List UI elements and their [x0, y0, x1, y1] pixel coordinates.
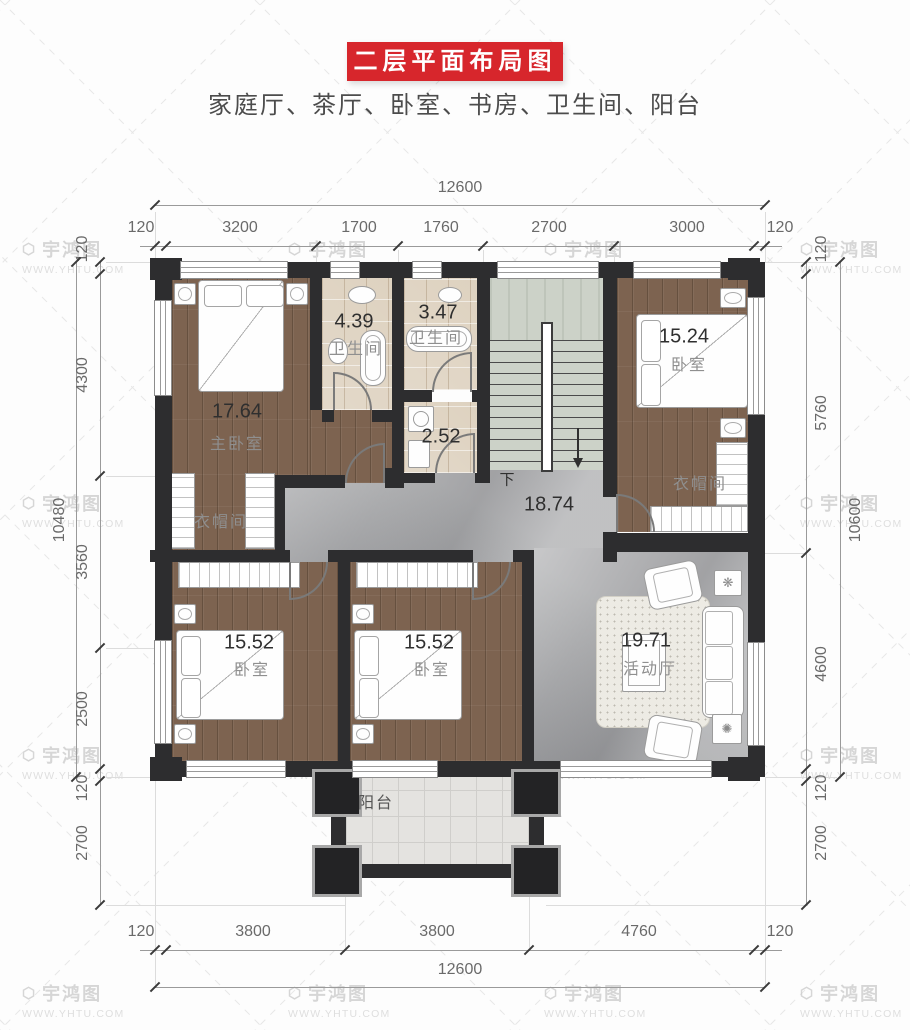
dim-line [100, 262, 101, 905]
balcony-pillar [514, 848, 558, 894]
dim-line [155, 987, 765, 988]
window [747, 642, 765, 746]
interior-wall [310, 262, 322, 410]
interior-wall [522, 550, 534, 761]
door-leaf [383, 443, 385, 483]
dim-left-seg: 3560 [74, 544, 92, 580]
dim-top-total: 12600 [438, 179, 483, 197]
nightstand [352, 724, 374, 744]
dim-top-seg: 3200 [222, 219, 258, 237]
bedroom-right-area: 15.24 [659, 326, 709, 349]
dim-bottom-seg: 3800 [419, 923, 455, 941]
interior-wall [322, 410, 334, 422]
window [154, 300, 172, 396]
nightstand [174, 604, 196, 624]
diagonal-guide-line [765, 0, 910, 1030]
bedroom-mid-name: 卧室 [414, 656, 450, 680]
bedroom-left-area: 15.52 [224, 632, 274, 655]
bathroom-1-name: 卫生间 [329, 335, 383, 359]
bedroom-right-closet-name: 衣帽间 [673, 470, 727, 494]
dim-top-seg: 3000 [669, 219, 705, 237]
dim-top-seg: 120 [767, 219, 794, 237]
side-table [720, 288, 746, 308]
dim-line [840, 262, 841, 777]
door-leaf [473, 433, 475, 473]
dim-right-seg: 120 [813, 236, 831, 263]
interior-wall [385, 468, 404, 488]
extension-line [106, 777, 155, 778]
interior-wall [338, 550, 350, 761]
extension-line [155, 777, 156, 985]
window [412, 261, 442, 279]
nightstand [352, 604, 374, 624]
interior-wall [404, 390, 432, 402]
master-name: 主卧室 [210, 430, 264, 454]
extension-line [398, 250, 399, 262]
window [497, 261, 599, 279]
extension-line [316, 250, 317, 262]
family-room-name: 活动厅 [623, 655, 677, 679]
balcony-name: 阳台 [358, 789, 394, 813]
balcony-wall [331, 864, 544, 878]
interior-wall [372, 410, 392, 422]
sofa-cushion [705, 611, 733, 645]
door-leaf [472, 562, 474, 600]
balcony-pillar [315, 848, 359, 894]
extension-line [106, 262, 155, 263]
dim-right-seg: 4600 [813, 646, 831, 682]
window [560, 760, 712, 778]
bedroom-right-wardrobe [650, 506, 748, 532]
family-room-area: 19.71 [621, 630, 671, 653]
corner-pier [728, 258, 760, 280]
stair-direction-label: 下 [499, 469, 514, 490]
interior-wall [477, 262, 490, 483]
pillow [359, 678, 379, 718]
interior-wall [603, 262, 617, 497]
dim-right-seg: 120 [813, 775, 831, 802]
bedroom-left-name: 卧室 [234, 656, 270, 680]
interior-wall [475, 473, 490, 483]
hall-area: 18.74 [524, 494, 574, 517]
dim-top-seg: 1760 [423, 219, 459, 237]
interior-wall [150, 550, 290, 562]
dim-bottom-seg: 120 [128, 923, 155, 941]
interior-wall [350, 550, 473, 562]
interior-wall [277, 475, 345, 488]
bathroom-2-area: 3.47 [419, 302, 458, 325]
dim-top-seg: 1700 [341, 219, 377, 237]
window [154, 640, 172, 744]
stair-railing [541, 322, 553, 472]
master-wardrobe [245, 473, 275, 549]
pillow [181, 678, 201, 718]
extension-line [546, 905, 808, 906]
dim-bottom-total: 12600 [438, 961, 483, 979]
dim-left-seg: 4300 [74, 357, 92, 393]
interior-wall [392, 262, 404, 488]
balcony-pillar [315, 772, 359, 814]
dim-top-seg: 120 [128, 219, 155, 237]
dim-bottom-seg: 3800 [235, 923, 271, 941]
pillow [204, 285, 242, 307]
bedroom-mid-wardrobe [356, 562, 478, 588]
window [330, 261, 360, 279]
sofa [702, 606, 744, 718]
corner-pier [150, 757, 182, 781]
extension-line [614, 250, 615, 262]
dim-left-seg: 120 [74, 775, 92, 802]
nightstand [286, 283, 308, 305]
page-title: 二层平面布局图 [354, 50, 557, 74]
sofa-cushion [705, 681, 733, 715]
window [186, 760, 286, 778]
floor-plan-page: ⬡宇鸿图WWW.YHTU.COM⬡宇鸿图WWW.YHTU.COM⬡宇鸿图WWW.… [0, 0, 910, 1030]
stair-arrow-head [573, 458, 583, 468]
corner-pier [150, 258, 182, 280]
dim-top-seg: 2700 [531, 219, 567, 237]
dim-right-seg: 5760 [813, 395, 831, 431]
door-leaf [333, 372, 335, 410]
door-leaf [616, 494, 618, 532]
dim-bottom-seg: 4760 [621, 923, 657, 941]
dim-line [140, 950, 782, 951]
side-table [720, 418, 746, 438]
dim-right-total: 10600 [847, 498, 865, 543]
page-title-banner: 二层平面布局图 [347, 42, 563, 81]
extension-line [106, 905, 346, 906]
bedroom-mid-area: 15.52 [404, 632, 454, 655]
armchair-cushion [652, 721, 693, 759]
window [180, 261, 288, 279]
plant-icon: ❋ [714, 570, 742, 596]
dim-line [806, 262, 807, 905]
interior-wall [404, 473, 435, 483]
door-leaf [470, 352, 472, 392]
balcony-door [352, 760, 438, 778]
lamp-icon: ✺ [712, 714, 742, 744]
bedroom-right-name: 卧室 [671, 351, 707, 375]
extension-line [155, 212, 156, 262]
laundry-area: 2.52 [422, 426, 461, 449]
extension-line [765, 553, 807, 554]
page-subtitle: 家庭厅、茶厅、卧室、书房、卫生间、阳台 [0, 92, 910, 121]
nightstand [174, 283, 196, 305]
interior-wall [328, 550, 338, 562]
bathroom-1-area: 4.39 [335, 311, 374, 334]
dim-bottom-seg: 120 [767, 923, 794, 941]
pillow [359, 636, 379, 676]
master-area: 17.64 [212, 401, 262, 424]
extension-line [483, 250, 484, 262]
interior-wall [472, 390, 490, 402]
interior-wall [275, 475, 285, 562]
pillow [641, 364, 661, 406]
bathroom-2-name: 卫生间 [409, 324, 463, 348]
door-leaf [289, 562, 291, 600]
pillow [246, 285, 284, 307]
dim-left-seg: 2700 [74, 825, 92, 861]
balcony-pillar [514, 772, 558, 814]
stair-arrow [577, 428, 579, 460]
dim-line [155, 205, 765, 206]
master-closet-name: 衣帽间 [194, 508, 248, 532]
sink [348, 286, 376, 304]
dim-line [140, 246, 782, 247]
bedroom-left-wardrobe [178, 562, 300, 588]
armchair [643, 714, 704, 767]
dim-right-seg: 2700 [813, 825, 831, 861]
interior-wall [513, 550, 522, 562]
window [747, 297, 765, 415]
nightstand [174, 724, 196, 744]
extension-line [765, 777, 766, 985]
corner-pier [728, 757, 760, 781]
sofa-cushion [705, 646, 733, 680]
dim-left-total: 10480 [51, 498, 69, 543]
window [633, 261, 721, 279]
diagonal-guide-line [765, 0, 910, 1030]
pillow [181, 636, 201, 676]
armchair-cushion [652, 567, 693, 604]
extension-line [106, 648, 155, 649]
dim-left-seg: 2500 [74, 691, 92, 727]
interior-wall [610, 533, 765, 552]
extension-line [106, 476, 155, 477]
